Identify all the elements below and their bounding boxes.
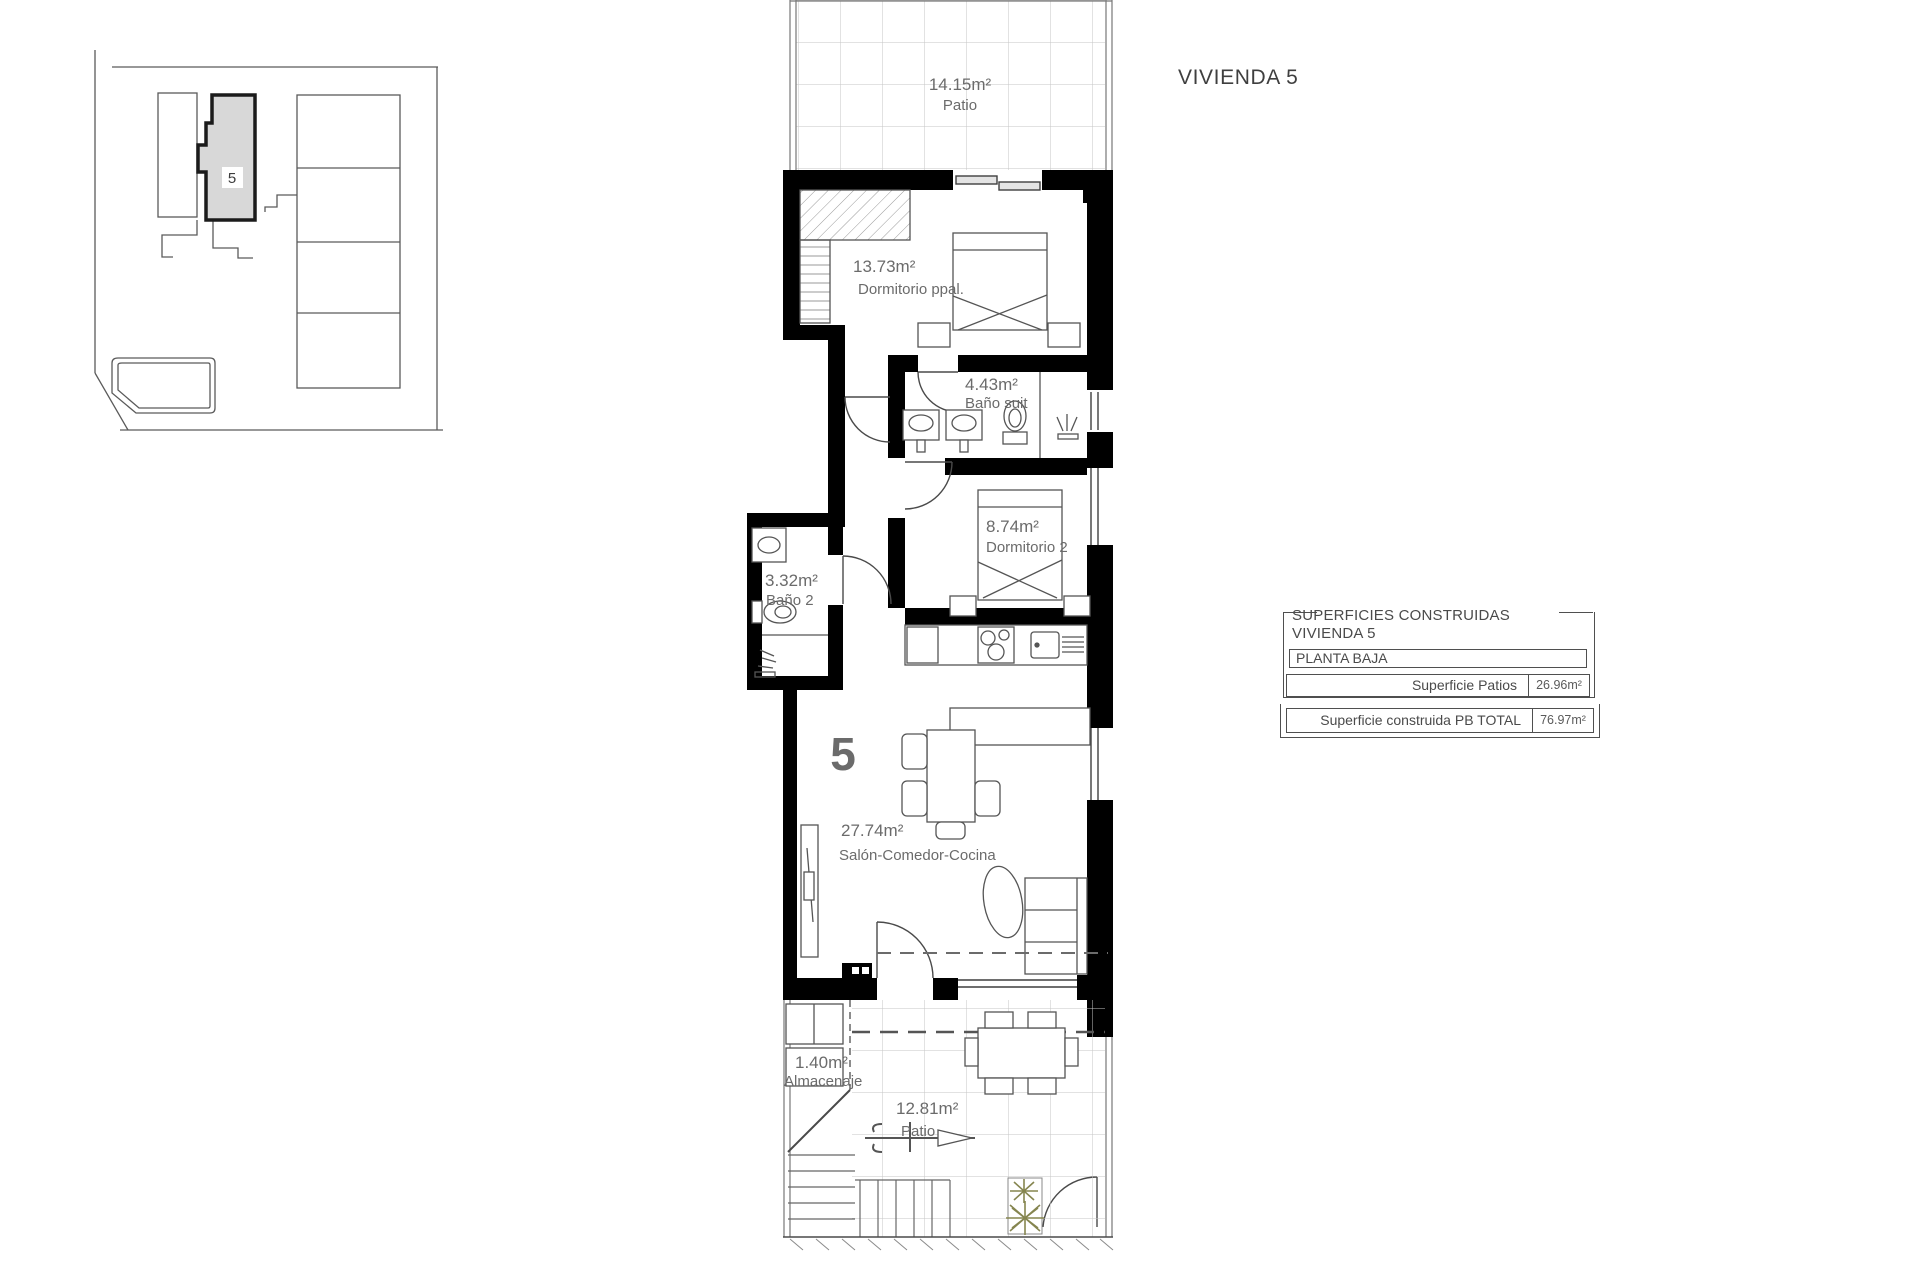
label-salon-name: Salón-Comedor-Cocina	[839, 847, 996, 864]
total-row: Superficie construida PB TOTAL 76.97m²	[1286, 708, 1594, 733]
summary-title: SUPERFICIES CONSTRUIDAS VIVIENDA 5	[1292, 607, 1510, 643]
planter	[1006, 1178, 1044, 1235]
label-dorm-2-area: 8.74m²	[986, 517, 1039, 536]
label-bano-2-area: 3.32m²	[765, 571, 818, 590]
door-bano-2	[843, 556, 891, 604]
site-key-plan: 5	[95, 50, 443, 430]
site-unit-5-highlight	[198, 95, 255, 220]
floor-label-box: PLANTA BAJA	[1289, 649, 1587, 668]
site-building-right	[297, 95, 400, 388]
door-salon-patio	[877, 922, 933, 978]
label-bano-suit-name: Baño suit	[965, 395, 1028, 412]
patios-row: Superficie Patios 26.96m²	[1286, 674, 1590, 697]
label-patio-top-name: Patio	[943, 97, 977, 114]
label-patio-bottom-name: Patio	[901, 1123, 935, 1140]
floorplan-page: 5	[0, 0, 1920, 1280]
label-almacenaje-area: 1.40m²	[795, 1053, 848, 1072]
shaft	[800, 240, 830, 323]
site-boundary	[95, 50, 443, 430]
total-row-label: Superficie construida PB TOTAL	[1291, 709, 1527, 732]
patio-slider-window	[956, 176, 1040, 190]
wardrobe	[800, 190, 910, 240]
kitchen-counter	[905, 625, 1087, 665]
summary-title-line2: VIVIENDA 5	[1292, 625, 1510, 643]
dining-set	[902, 708, 1090, 839]
door-dormitorio-ppal	[845, 397, 890, 442]
stair-diagonal	[788, 1090, 850, 1152]
label-patio-top-area: 14.15m²	[929, 75, 992, 94]
label-almacenaje-name: Almacenaje	[784, 1073, 862, 1090]
label-salon-area: 27.74m²	[841, 821, 904, 840]
total-row-value: 76.97m²	[1532, 709, 1593, 732]
shower-icon	[1057, 414, 1078, 439]
summary-title-line1: SUPERFICIES CONSTRUIDAS	[1292, 607, 1510, 625]
page-title: VIVIENDA 5	[1178, 66, 1298, 90]
label-patio-bottom-area: 12.81m²	[896, 1099, 959, 1118]
label-dorm-ppal-area: 13.73m²	[853, 257, 916, 276]
surface-summary-table: SUPERFICIES CONSTRUIDAS VIVIENDA 5 PLANT…	[1280, 606, 1602, 746]
bottom-hatch-ticks	[790, 1239, 1113, 1250]
tv-unit	[801, 825, 818, 957]
patios-row-value: 26.96m²	[1528, 675, 1589, 696]
door-bano-suit	[918, 372, 958, 412]
total-row-outer: Superficie construida PB TOTAL 76.97m²	[1280, 704, 1600, 738]
patios-row-label: Superficie Patios	[1287, 675, 1523, 696]
rug	[978, 863, 1028, 941]
unit-number: 5	[830, 728, 856, 780]
site-pool	[112, 358, 215, 413]
label-bano-suit-area: 4.43m²	[965, 375, 1018, 394]
site-unit-label: 5	[228, 170, 236, 187]
door-dormitorio-2	[905, 462, 952, 509]
floor-plan-canvas: 5	[0, 0, 1920, 1280]
label-dorm-ppal-name: Dormitorio ppal.	[858, 281, 964, 298]
label-bano-2-name: Baño 2	[766, 592, 814, 609]
sofa	[1025, 878, 1087, 974]
site-building-left	[158, 93, 197, 217]
label-dorm-2-name: Dormitorio 2	[986, 539, 1068, 556]
summary-corner-tick-right	[1559, 612, 1593, 613]
